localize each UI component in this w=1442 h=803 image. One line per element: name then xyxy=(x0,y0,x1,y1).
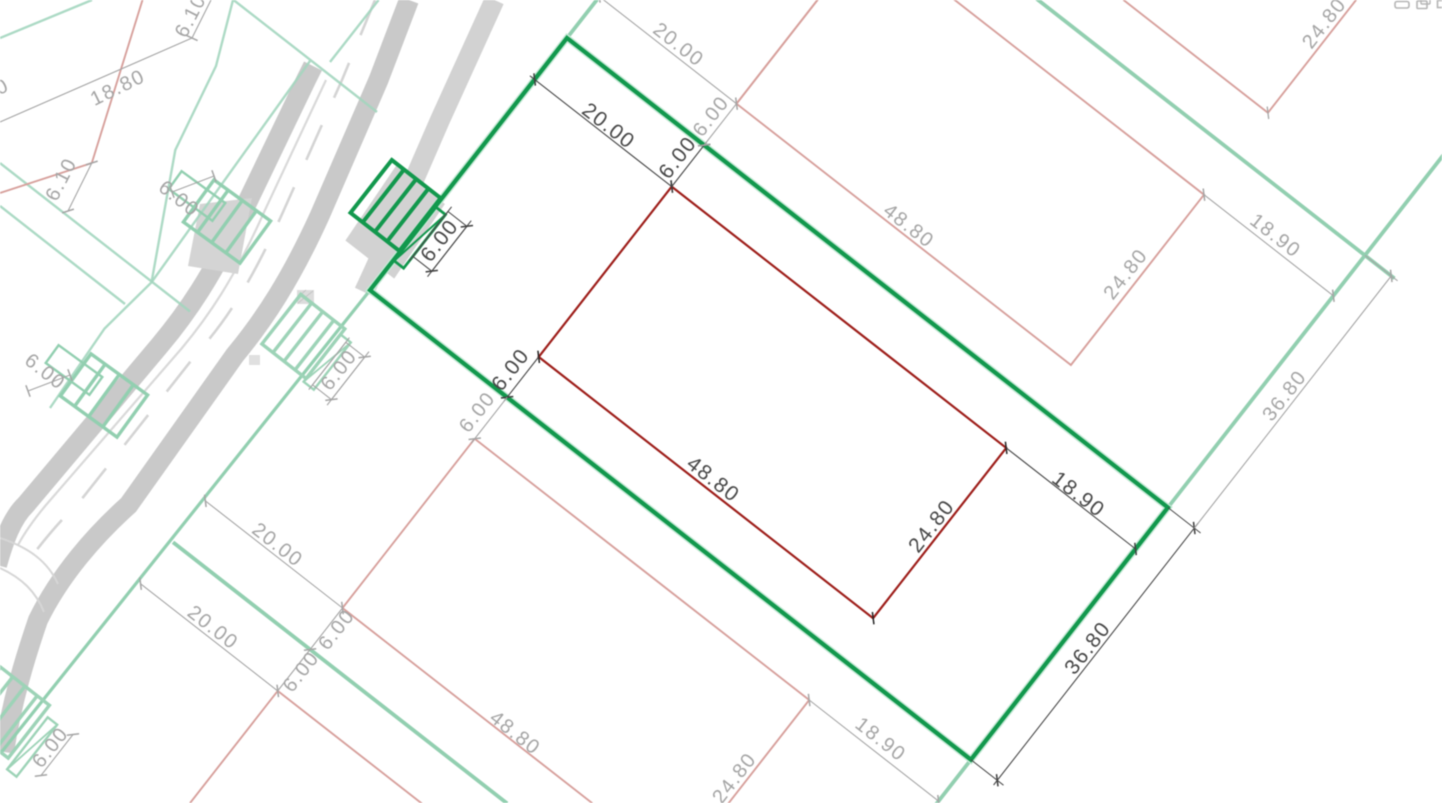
svg-text:20.00: 20.00 xyxy=(248,519,307,572)
svg-text:6.10: 6.10 xyxy=(42,154,82,204)
svg-text:20.00: 20.00 xyxy=(649,18,708,71)
svg-text:6.00: 6.00 xyxy=(20,349,69,394)
svg-text:20.00: 20.00 xyxy=(183,601,242,654)
svg-text:6.00: 6.00 xyxy=(28,723,73,772)
svg-text:48.80: 48.80 xyxy=(485,707,544,760)
svg-text:6.00: 6.00 xyxy=(487,344,534,395)
svg-text:36.80: 36.80 xyxy=(1060,617,1115,679)
svg-text:36.80: 36.80 xyxy=(1258,366,1311,425)
svg-text:18.90: 18.90 xyxy=(1047,467,1109,522)
svg-text:6.00: 6.00 xyxy=(455,388,500,437)
svg-text:18.80: 18.80 xyxy=(87,65,149,110)
svg-text:6.00: 6.00 xyxy=(314,605,359,654)
svg-text:18.80: 18.80 xyxy=(0,74,13,119)
svg-text:24.80: 24.80 xyxy=(1298,0,1351,53)
svg-text:48.80: 48.80 xyxy=(879,200,938,253)
svg-text:24.80: 24.80 xyxy=(708,749,761,803)
svg-text:24.80: 24.80 xyxy=(904,495,959,557)
svg-text:18.90: 18.90 xyxy=(1246,209,1305,262)
svg-text:20.00: 20.00 xyxy=(578,98,640,153)
svg-text:48.80: 48.80 xyxy=(682,452,744,507)
svg-text:6.10: 6.10 xyxy=(171,0,211,41)
